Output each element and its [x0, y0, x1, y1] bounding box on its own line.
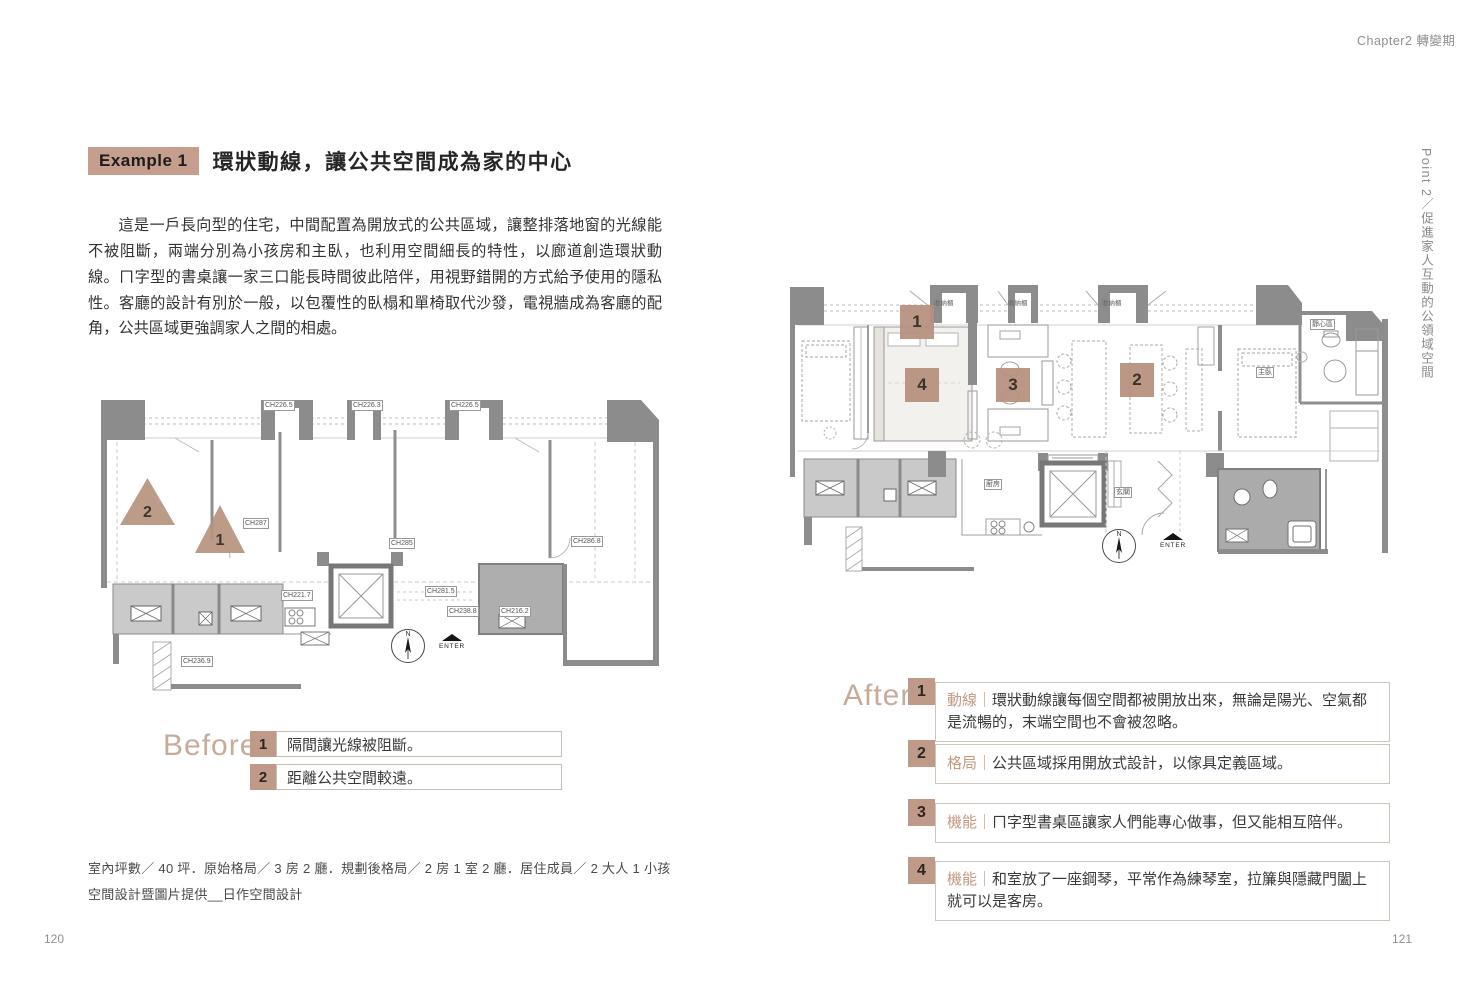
part-side-note: Point 2／促進家人互動的公領域空間 — [1417, 148, 1436, 408]
plan-annotation: CH221.7 — [281, 590, 313, 601]
after-marker-2: 2 — [1120, 363, 1154, 397]
plan-annotation: CH238.8 — [447, 606, 479, 617]
after-item-number: 2 — [908, 740, 935, 767]
after-heading: After — [843, 679, 911, 713]
intro-paragraph: 這是一戶長向型的住宅，中間配置為開放式的公共區域，讓整排落地窗的光線能不被阻斷，… — [88, 213, 662, 342]
after-item-number: 3 — [908, 799, 935, 826]
after-item-category: 動線｜ — [947, 692, 992, 709]
before-floor-plan: 2 1 CH226.5 CH226.3 CH226.5 CH287 CH285 … — [95, 392, 665, 692]
after-item: 2 格局｜公共區域採用開放式設計，以傢具定義區域。 — [908, 740, 1390, 784]
plan-annotation: CH287 — [243, 518, 269, 529]
after-item: 1 動線｜環狀動線讓每個空間都被開放出來，無論是陽光、空氣都是流暢的，末端空間也… — [908, 678, 1390, 742]
after-item-text: 機能｜和室放了一座鋼琴，平常作為練琴室，拉簾與隱藏門闔上就可以是客房。 — [935, 861, 1390, 921]
after-item-category: 機能｜ — [947, 871, 992, 888]
after-item-number: 1 — [908, 678, 935, 705]
before-item-text: 距離公共空間較遠。 — [276, 764, 562, 790]
plan-annotation: CH226.5 — [449, 400, 481, 411]
after-marker-3: 3 — [996, 368, 1030, 402]
enter-marker: ENTER — [1156, 533, 1190, 549]
plan-annotation: 主臥 — [1256, 367, 1274, 378]
after-list: 1 動線｜環狀動線讓每個空間都被開放出來，無論是陽光、空氣都是流暢的，末端空間也… — [908, 678, 1390, 918]
before-item: 1 隔間讓光線被阻斷。 — [250, 731, 562, 757]
after-item-number: 4 — [908, 857, 935, 884]
enter-arrow-icon — [442, 634, 462, 641]
compass-needle-icon — [1114, 537, 1124, 559]
plan-annotation: CH281.5 — [425, 586, 457, 597]
plan-annotation: 玄關 — [1114, 487, 1132, 498]
example-badge: Example 1 — [88, 147, 199, 175]
before-item-number: 1 — [250, 731, 276, 757]
after-item-text: 格局｜公共區域採用開放式設計，以傢具定義區域。 — [935, 744, 1390, 784]
plan-annotation: CH236.9 — [181, 656, 213, 667]
plan-annotation: CH216.2 — [499, 606, 531, 617]
after-item-text: 機能｜ㄇ字型書桌區讓家人們能專心做事，但又能相互陪伴。 — [935, 803, 1390, 843]
after-floor-plan: 1 4 3 2 收納櫃 收納櫃 收納櫃 廚房 玄關 靜心區 主臥 N ENTER — [790, 283, 1390, 573]
after-item-category: 機能｜ — [947, 814, 992, 831]
before-list: 1 隔間讓光線被阻斷。 2 距離公共空間較遠。 — [250, 731, 562, 791]
page-number-left: 120 — [44, 932, 64, 946]
enter-marker: ENTER — [435, 634, 469, 650]
compass-icon: N — [1102, 529, 1136, 563]
enter-label: ENTER — [439, 643, 465, 650]
plan-annotation: CH226.5 — [263, 400, 295, 411]
compass-icon: N — [391, 629, 425, 663]
before-heading: Before — [163, 729, 257, 763]
after-marker-1: 1 — [900, 305, 934, 339]
after-floor-plan-drawing — [790, 283, 1390, 573]
plan-annotation: 收納櫃 — [1101, 299, 1123, 308]
plan-annotation: CH226.3 — [351, 400, 383, 411]
plan-annotation: 靜心區 — [1310, 319, 1335, 330]
enter-arrow-icon — [1163, 533, 1183, 540]
compass-needle-icon — [403, 637, 413, 659]
after-item: 3 機能｜ㄇ字型書桌區讓家人們能專心做事，但又能相互陪伴。 — [908, 799, 1390, 843]
chapter-note: Chapter2 轉變期 — [1357, 30, 1455, 49]
credit-line: 空間設計暨圖片提供__日作空間設計 — [88, 884, 303, 903]
plan-annotation: CH286.8 — [571, 536, 603, 547]
before-item-text: 隔間讓光線被阻斷。 — [276, 731, 562, 757]
after-item-category: 格局｜ — [947, 755, 992, 772]
example-heading: Example 1 環狀動線，讓公共空間成為家的中心 — [88, 146, 573, 176]
plan-annotation: 廚房 — [984, 479, 1002, 490]
book-spread: Chapter2 轉變期 Point 2／促進家人互動的公領域空間 Exampl… — [0, 0, 1478, 1000]
page-title: 環狀動線，讓公共空間成為家的中心 — [213, 146, 573, 176]
plan-annotation: 收納櫃 — [1007, 299, 1029, 308]
plan-annotation: CH285 — [389, 538, 415, 549]
after-item-text: 動線｜環狀動線讓每個空間都被開放出來，無論是陽光、空氣都是流暢的，末端空間也不會… — [935, 682, 1390, 742]
page-number-right: 121 — [1392, 932, 1412, 946]
project-spec-line: 室內坪數／ 40 坪．原始格局／ 3 房 2 廳．規劃後格局／ 2 房 1 室 … — [88, 858, 671, 877]
enter-label: ENTER — [1160, 542, 1186, 549]
after-marker-4: 4 — [905, 368, 939, 402]
after-item: 4 機能｜和室放了一座鋼琴，平常作為練琴室，拉簾與隱藏門闔上就可以是客房。 — [908, 857, 1390, 921]
before-item-number: 2 — [250, 764, 276, 790]
plan-annotation: 收納櫃 — [933, 299, 955, 308]
before-item: 2 距離公共空間較遠。 — [250, 764, 562, 790]
